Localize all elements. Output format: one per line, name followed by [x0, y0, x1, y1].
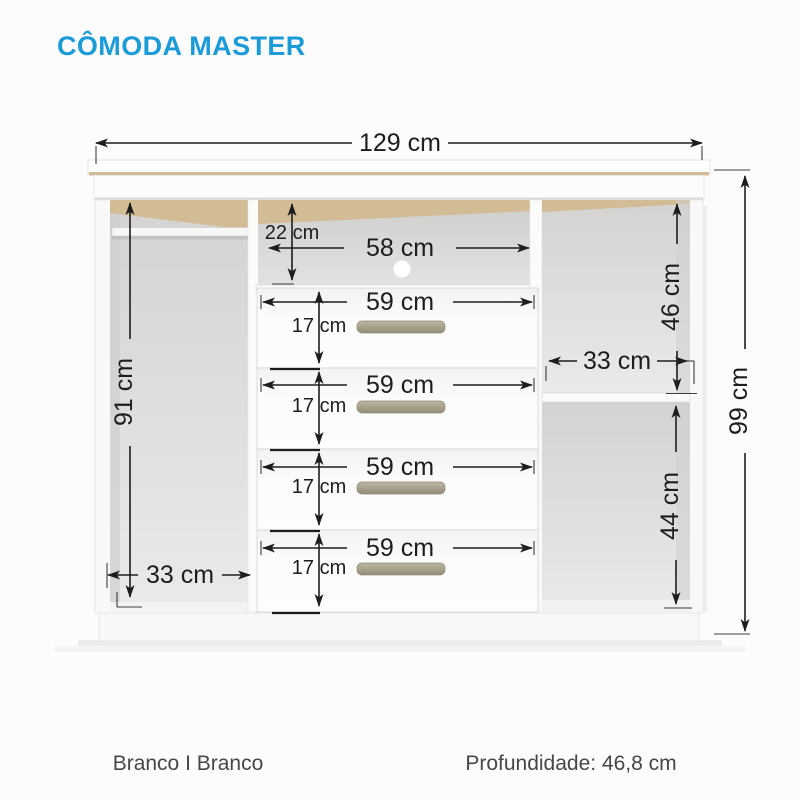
dim-label-right-lower-height: 44 cm — [656, 472, 684, 540]
dim-label-drawer-height: 17 cm — [292, 476, 346, 498]
dim-label-right-upper-height: 46 cm — [657, 263, 685, 331]
hanging-rod-shadow — [112, 236, 253, 240]
drawer-handle — [357, 321, 445, 333]
right-compartment-wall-shade — [676, 200, 690, 610]
finish-label: Branco I Branco — [113, 752, 264, 776]
cable-hole — [394, 261, 411, 278]
dim-label-drawer-height: 17 cm — [292, 557, 346, 579]
dim-label-drawer-height: 17 cm — [292, 395, 346, 417]
right-compartment-floor — [542, 600, 690, 612]
depth-label: Profundidade: 46,8 cm — [465, 752, 676, 776]
dim-label-left-height: 91 cm — [110, 358, 138, 426]
dim-label-drawer-width: 59 cm — [366, 371, 434, 399]
dim-label-drawer-width: 59 cm — [366, 288, 434, 316]
dim-label-niche-width: 58 cm — [366, 234, 434, 262]
dim-overall-height: 99 cm — [714, 170, 753, 634]
dim-label-drawer-height: 17 cm — [292, 315, 346, 337]
top-panel — [88, 160, 710, 174]
drawer-handle — [357, 563, 445, 575]
dim-label-niche-height: 22 cm — [265, 222, 319, 244]
dim-label-right-width: 33 cm — [583, 347, 651, 375]
dim-label-overall-height: 99 cm — [725, 367, 753, 435]
plinth — [99, 613, 699, 641]
drawer-handle — [357, 482, 445, 494]
dim-label-drawer-width: 59 cm — [366, 453, 434, 481]
dim-label-left-width: 33 cm — [146, 561, 214, 589]
dimension-diagram: 129 cm 99 cm 91 cm 22 cm 58 — [0, 0, 800, 800]
drawer-handle — [357, 401, 445, 413]
dim-label-drawer-width: 59 cm — [366, 534, 434, 562]
dim-label-overall-width: 129 cm — [359, 129, 441, 157]
divider-right — [530, 200, 542, 290]
top-fascia — [94, 176, 704, 200]
right-middle-shelf — [542, 393, 690, 402]
top-panel-wood-edge — [89, 172, 709, 176]
floor-shadow-soft — [55, 646, 745, 652]
hanging-rod — [112, 228, 253, 237]
dim-overall-width: 129 cm — [96, 129, 702, 164]
cabinet-right-shadow — [703, 206, 707, 612]
